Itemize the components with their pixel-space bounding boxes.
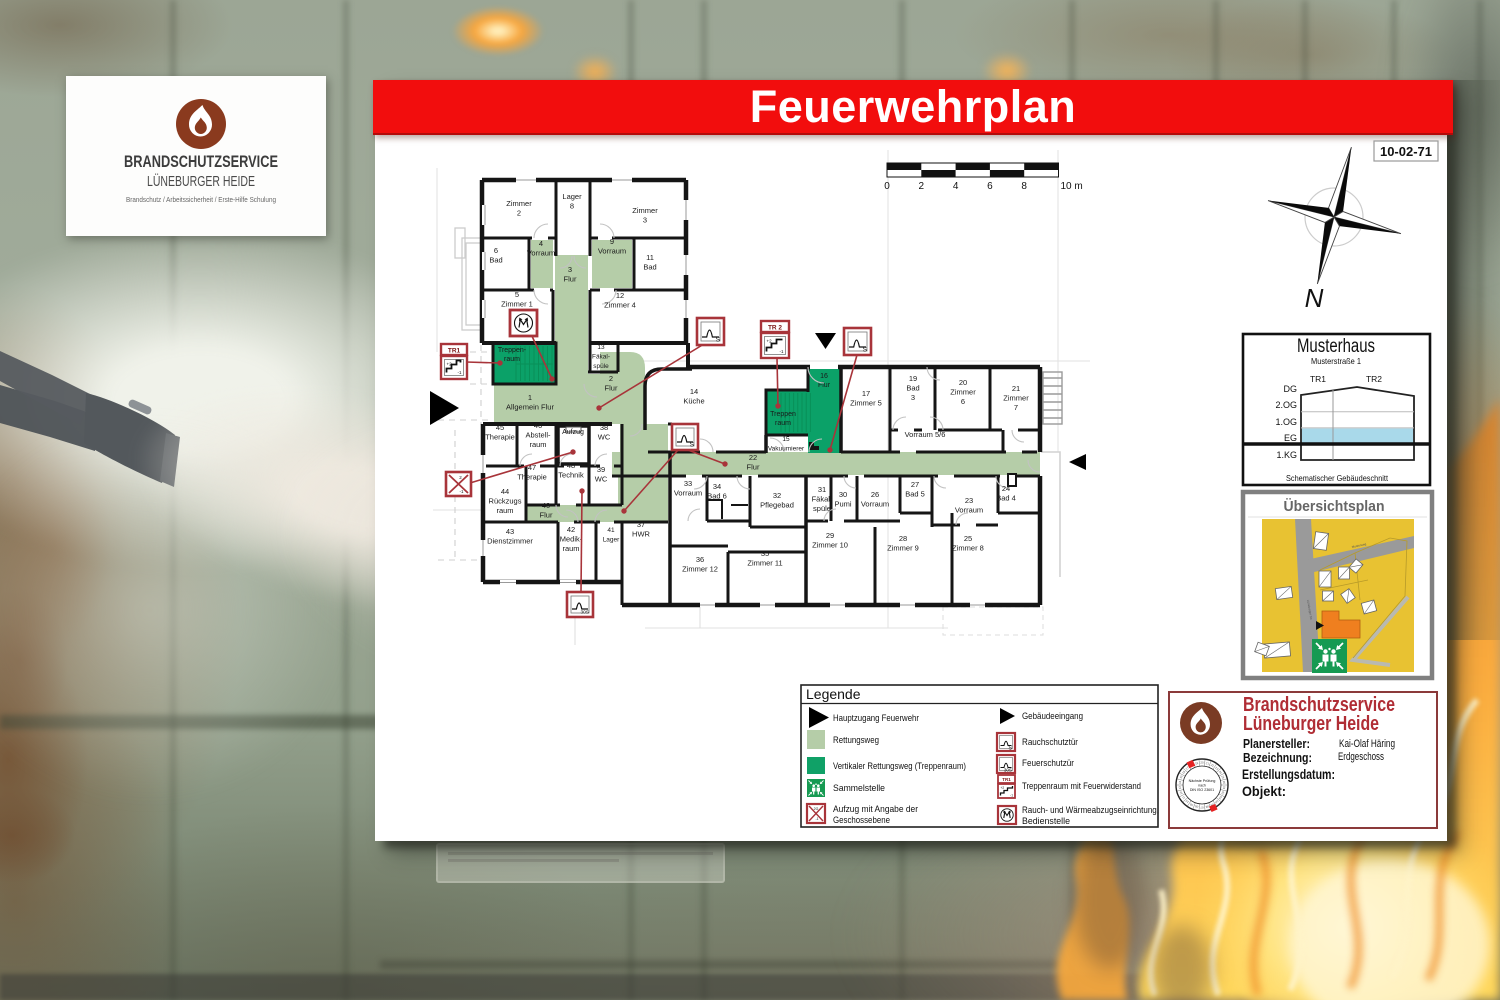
svg-text:1.OG: 1.OG	[1275, 417, 1297, 427]
svg-text:-1: -1	[815, 817, 818, 821]
svg-text:20: 20	[1200, 761, 1204, 765]
svg-text:Flur: Flur	[747, 463, 760, 472]
svg-text:Kai-Olaf Häring: Kai-Olaf Häring	[1339, 738, 1395, 750]
svg-text:37: 37	[637, 520, 645, 529]
svg-text:Planersteller:: Planersteller:	[1243, 736, 1310, 751]
svg-text:-1: -1	[779, 349, 783, 354]
svg-text:Dienstzimmer: Dienstzimmer	[487, 537, 533, 546]
svg-text:26: 26	[871, 490, 879, 499]
svg-text:Rauch- und Wärmeabzugseinricht: Rauch- und Wärmeabzugseinrichtung,	[1022, 805, 1159, 816]
svg-text:6: 6	[494, 246, 498, 255]
svg-text:Therapie: Therapie	[517, 473, 547, 482]
svg-text:HWR: HWR	[632, 530, 650, 539]
svg-text:Medik-: Medik-	[560, 535, 583, 544]
svg-text:raum: raum	[504, 356, 520, 363]
svg-text:Allgemein Flur: Allgemein Flur	[506, 403, 554, 412]
svg-text:46: 46	[534, 421, 542, 430]
svg-text:S: S	[716, 337, 721, 344]
svg-text:spüle: spüle	[593, 363, 609, 370]
svg-text:Lüneburger Heide: Lüneburger Heide	[1243, 713, 1379, 735]
svg-text:Technik: Technik	[558, 471, 584, 480]
svg-text:Gebäudeeingang: Gebäudeeingang	[1022, 711, 1083, 722]
svg-text:Bad 6: Bad 6	[707, 492, 727, 501]
svg-text:Vakuumierer: Vakuumierer	[768, 446, 805, 453]
svg-text:Zimmer: Zimmer	[506, 199, 532, 208]
svg-text:11: 11	[646, 253, 654, 262]
svg-text:3: 3	[643, 216, 647, 225]
svg-text:44: 44	[501, 487, 509, 496]
svg-text:2: 2	[517, 209, 521, 218]
svg-text:12: 12	[616, 291, 624, 300]
svg-text:27: 27	[911, 480, 919, 489]
svg-text:Vorraum: Vorraum	[861, 500, 889, 509]
svg-text:Zimmer 1: Zimmer 1	[501, 300, 533, 309]
svg-text:+2: +2	[1001, 786, 1005, 790]
svg-text:TR1: TR1	[1310, 374, 1326, 384]
svg-text:Lager: Lager	[603, 537, 620, 544]
svg-text:2.OG: 2.OG	[1275, 400, 1297, 410]
svg-text:2: 2	[919, 181, 925, 192]
svg-text:WC: WC	[595, 475, 608, 484]
svg-text:16: 16	[820, 373, 828, 380]
svg-text:S: S	[690, 442, 695, 449]
svg-text:3: 3	[568, 265, 572, 274]
svg-text:2: 2	[609, 374, 613, 383]
svg-text:29: 29	[826, 531, 834, 540]
svg-text:Brandschutz / Arbeitssicherhei: Brandschutz / Arbeitssicherheit / Erste-…	[126, 195, 276, 204]
svg-text:15: 15	[782, 436, 790, 443]
svg-text:raum: raum	[496, 506, 513, 515]
svg-text:TR2: TR2	[1366, 374, 1382, 384]
svg-text:Zimmer 8: Zimmer 8	[952, 544, 984, 553]
svg-text:5: 5	[515, 290, 519, 299]
svg-text:48: 48	[567, 461, 575, 470]
svg-text:Nächste Prüfung: Nächste Prüfung	[1189, 779, 1216, 783]
svg-text:Erstellungsdatum:: Erstellungsdatum:	[1242, 767, 1335, 782]
svg-text:38: 38	[600, 423, 608, 432]
svg-text:Zimmer 5: Zimmer 5	[850, 399, 882, 408]
svg-text:30S: 30S	[580, 610, 589, 616]
svg-text:+2: +2	[447, 362, 453, 367]
svg-text:Zimmer: Zimmer	[950, 388, 976, 397]
svg-text:17: 17	[862, 389, 870, 398]
svg-text:24: 24	[1002, 484, 1010, 493]
svg-text:22: 22	[749, 453, 757, 462]
svg-text:23: 23	[965, 496, 973, 505]
svg-text:19: 19	[909, 374, 917, 383]
svg-text:Bad 4: Bad 4	[996, 494, 1016, 503]
svg-text:Rettungsweg: Rettungsweg	[833, 735, 879, 746]
svg-text:BRANDSCHUTZSERVICE: BRANDSCHUTZSERVICE	[124, 152, 278, 171]
svg-text:Zimmer 12: Zimmer 12	[682, 565, 718, 574]
svg-text:S: S	[1008, 746, 1012, 752]
svg-text:-1: -1	[1010, 794, 1013, 798]
svg-text:Schematischer Gebäudeschnitt: Schematischer Gebäudeschnitt	[1286, 473, 1389, 483]
svg-text:Lager: Lager	[562, 192, 582, 201]
svg-text:Musterhaus: Musterhaus	[1297, 336, 1375, 357]
svg-text:32: 32	[773, 491, 781, 500]
svg-text:Flur: Flur	[564, 275, 577, 284]
svg-text:Therapie: Therapie	[485, 433, 515, 442]
svg-text:28: 28	[899, 534, 907, 543]
svg-text:Treppenraum mit Feuerwiderstan: Treppenraum mit Feuerwiderstand	[1022, 781, 1141, 792]
svg-text:Bad: Bad	[906, 384, 919, 393]
svg-text:3: 3	[911, 393, 915, 402]
svg-text:S: S	[863, 347, 868, 354]
svg-text:35: 35	[761, 549, 769, 558]
svg-text:Rauchschutztür: Rauchschutztür	[1022, 737, 1078, 748]
svg-text:Vorraum: Vorraum	[527, 249, 555, 258]
svg-text:31: 31	[818, 485, 826, 494]
svg-text:30S: 30S	[1004, 768, 1012, 773]
svg-text:Flur: Flur	[605, 384, 618, 393]
svg-text:43: 43	[506, 527, 514, 536]
svg-text:34: 34	[713, 482, 721, 491]
svg-text:LÜNEBURGER HEIDE: LÜNEBURGER HEIDE	[147, 172, 255, 190]
svg-text:Flur: Flur	[540, 511, 553, 520]
svg-text:10-02-71: 10-02-71	[1380, 144, 1432, 159]
svg-text:Abstell-: Abstell-	[525, 431, 551, 440]
svg-text:Bad: Bad	[489, 256, 502, 265]
svg-text:Bad 5: Bad 5	[905, 490, 925, 499]
svg-text:Küche: Küche	[683, 397, 704, 406]
svg-text:TR 2: TR 2	[768, 325, 782, 332]
svg-text:Zimmer 9: Zimmer 9	[887, 544, 919, 553]
svg-text:42: 42	[567, 525, 575, 534]
svg-text:Zimmer 11: Zimmer 11	[747, 559, 782, 568]
svg-text:4: 4	[953, 181, 959, 192]
svg-text:Legende: Legende	[806, 686, 861, 702]
svg-text:Zimmer 10: Zimmer 10	[812, 541, 848, 550]
svg-text:6: 6	[987, 181, 993, 192]
svg-text:07: 07	[1200, 805, 1204, 809]
svg-text:Treppen: Treppen	[770, 411, 796, 418]
svg-text:2G: 2G	[814, 807, 819, 811]
svg-text:36: 36	[696, 555, 704, 564]
svg-text:Zimmer: Zimmer	[632, 206, 658, 215]
svg-text:Bezeichnung:: Bezeichnung:	[1243, 750, 1312, 765]
svg-text:Zimmer: Zimmer	[1003, 394, 1029, 403]
svg-text:Zimmer 4: Zimmer 4	[604, 301, 636, 310]
svg-text:WC: WC	[598, 433, 611, 442]
svg-text:39: 39	[597, 465, 605, 474]
svg-text:N: N	[1305, 283, 1324, 313]
svg-text:Bedienstelle: Bedienstelle	[1022, 816, 1070, 827]
svg-text:40: 40	[542, 501, 550, 510]
svg-text:7: 7	[1014, 403, 1018, 412]
svg-text:TR1: TR1	[1002, 777, 1011, 782]
svg-text:Vorraum 5/6: Vorraum 5/6	[905, 430, 946, 439]
svg-text:-1: -1	[457, 370, 461, 375]
svg-text:raum: raum	[529, 440, 546, 449]
svg-text:13: 13	[597, 344, 605, 351]
svg-text:Vertikaler Rettungsweg (Treppe: Vertikaler Rettungsweg (Treppenraum)	[833, 761, 966, 772]
svg-text:33: 33	[684, 479, 692, 488]
svg-text:+2: +2	[767, 339, 773, 344]
svg-text:Rückzugs: Rückzugs	[489, 497, 522, 506]
svg-text:nach: nach	[1198, 784, 1206, 788]
svg-text:Vorraum: Vorraum	[598, 247, 626, 256]
svg-text:Treppen-: Treppen-	[498, 347, 527, 354]
svg-text:9: 9	[610, 237, 614, 246]
svg-text:14: 14	[690, 387, 698, 396]
svg-text:DIN ISO 23601: DIN ISO 23601	[1190, 788, 1214, 792]
svg-text:4: 4	[539, 239, 543, 248]
svg-text:41: 41	[607, 527, 615, 534]
svg-text:Pflegebad: Pflegebad	[760, 501, 794, 510]
svg-text:raum: raum	[775, 420, 791, 427]
svg-text:10 m: 10 m	[1061, 181, 1083, 192]
svg-text:Erdgeschoss: Erdgeschoss	[1338, 751, 1384, 763]
svg-text:Bad: Bad	[643, 263, 656, 272]
svg-text:Aufzug: Aufzug	[562, 429, 584, 436]
svg-text:30: 30	[839, 490, 847, 499]
svg-text:Hauptzugang Feuerwehr: Hauptzugang Feuerwehr	[833, 713, 919, 724]
svg-text:Fäkal-: Fäkal-	[812, 495, 833, 504]
svg-text:spüle: spüle	[813, 504, 831, 513]
svg-text:TR1: TR1	[448, 348, 461, 355]
svg-text:Musterstraße 1: Musterstraße 1	[1311, 356, 1361, 366]
svg-text:Geschossebene: Geschossebene	[833, 815, 890, 826]
svg-text:Vorraum: Vorraum	[955, 506, 983, 515]
svg-text:45: 45	[496, 423, 504, 432]
svg-text:Vorraum: Vorraum	[674, 489, 702, 498]
svg-text:EG: EG	[1284, 433, 1297, 443]
svg-text:0: 0	[884, 181, 890, 192]
svg-text:1.KG: 1.KG	[1276, 450, 1297, 460]
svg-text:Sammelstelle: Sammelstelle	[833, 783, 885, 794]
svg-text:20: 20	[959, 378, 967, 387]
svg-text:21: 21	[1012, 384, 1020, 393]
svg-text:Aufzug mit Angabe der: Aufzug mit Angabe der	[833, 804, 918, 815]
svg-text:DG: DG	[1284, 384, 1298, 394]
svg-text:Fäkal-: Fäkal-	[592, 354, 610, 361]
svg-text:raum: raum	[562, 544, 579, 553]
svg-text:6: 6	[961, 397, 965, 406]
svg-text:1: 1	[528, 393, 532, 402]
svg-text:Pumi: Pumi	[834, 500, 851, 509]
svg-text:Objekt:: Objekt:	[1242, 784, 1286, 799]
svg-text:Feuerschutzür: Feuerschutzür	[1022, 758, 1074, 769]
svg-text:Übersichtsplan: Übersichtsplan	[1284, 498, 1385, 515]
svg-text:8: 8	[570, 202, 574, 211]
svg-text:8: 8	[1021, 181, 1027, 192]
svg-text:-1: -1	[459, 489, 463, 494]
svg-text:25: 25	[964, 534, 972, 543]
